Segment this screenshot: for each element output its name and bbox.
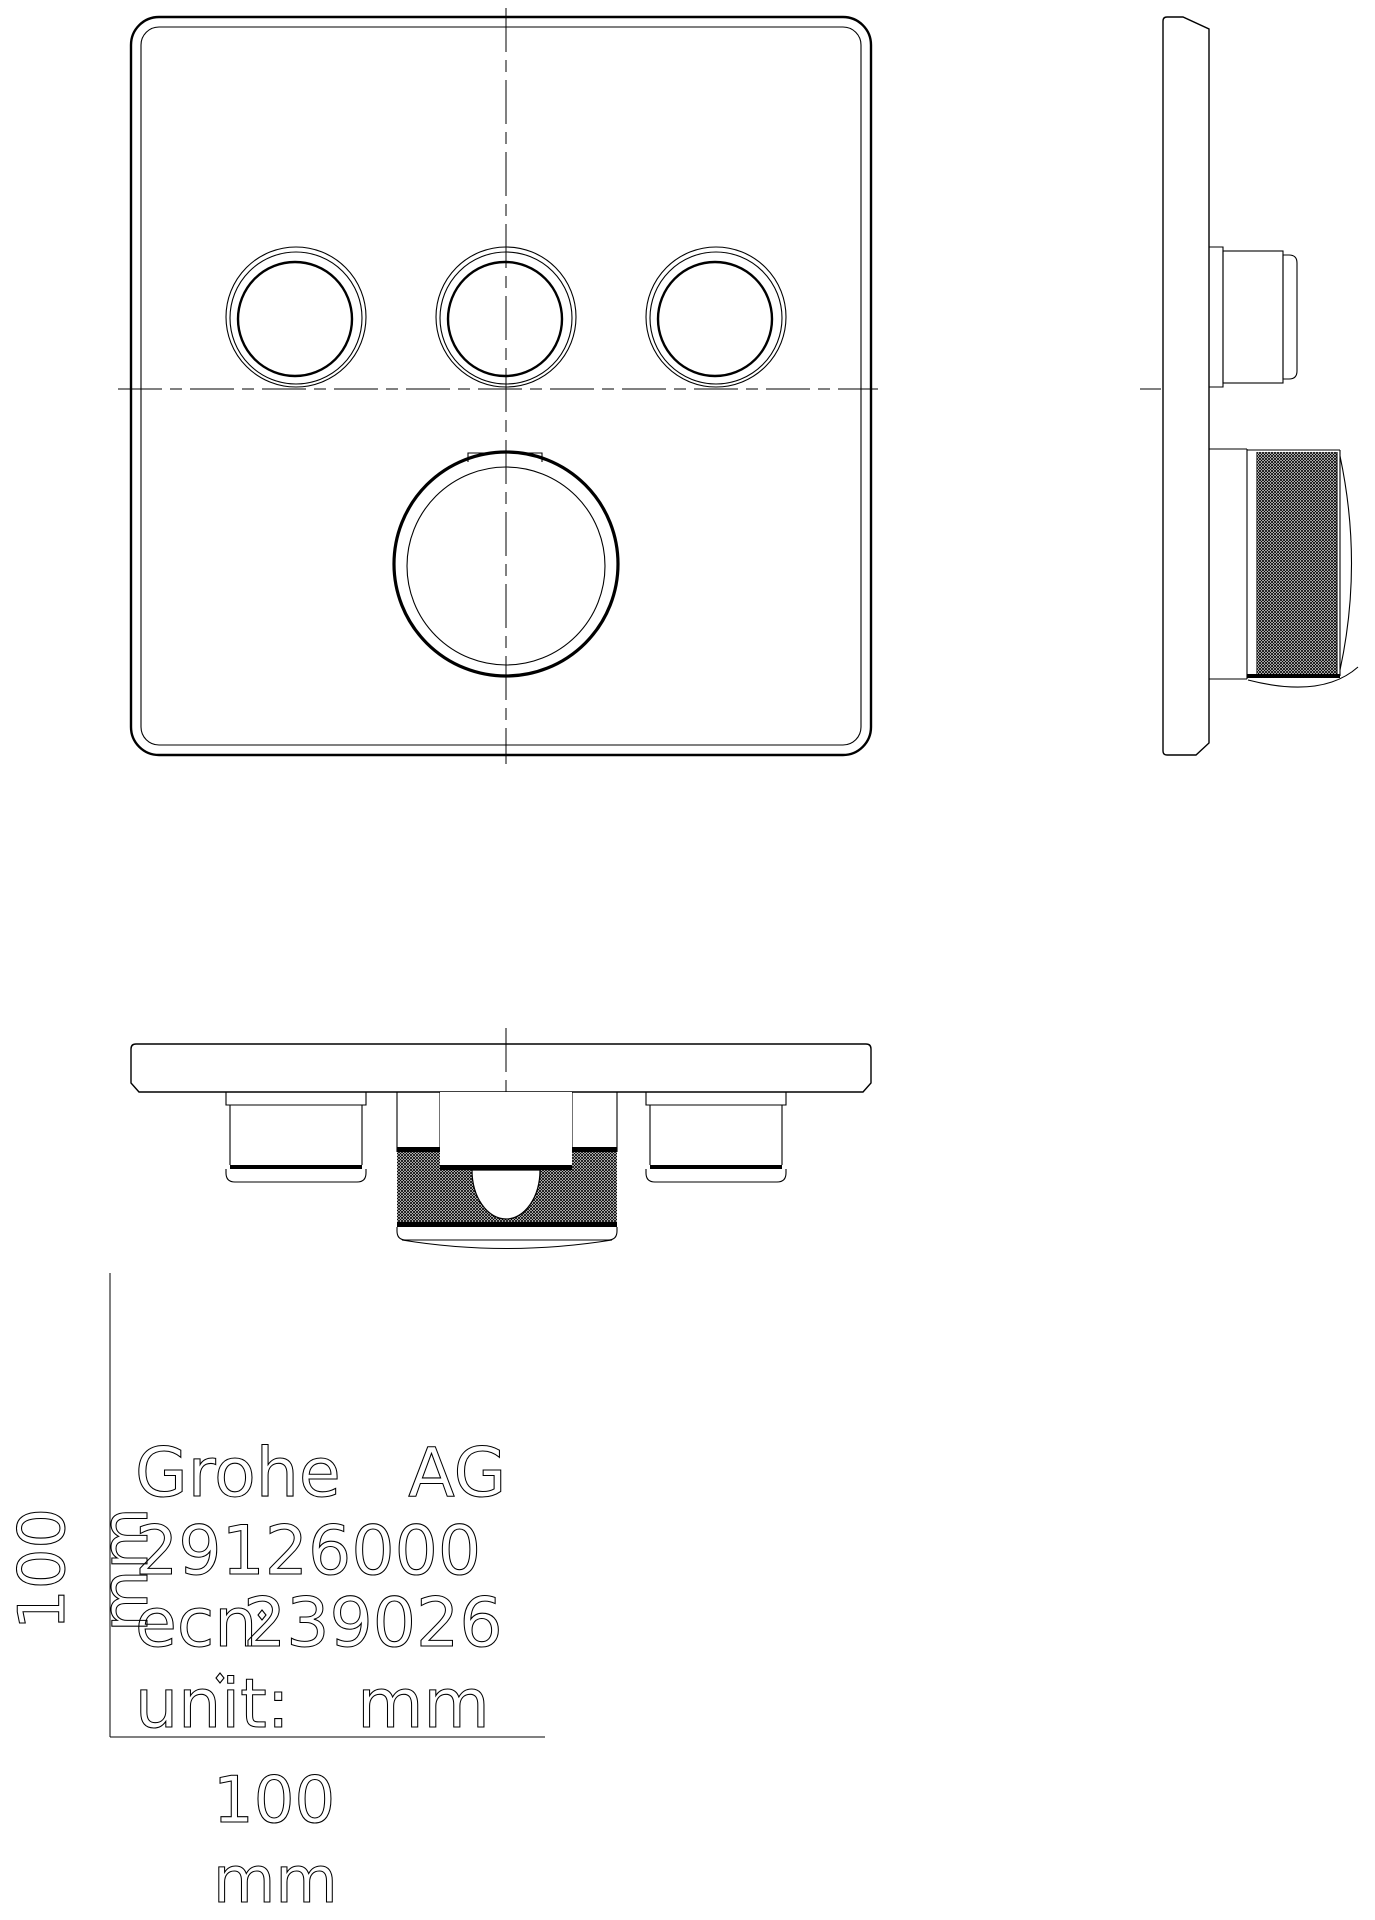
button-band — [226, 1092, 366, 1105]
width-dimension-unit: mm — [213, 1844, 338, 1918]
button-mid-ring — [650, 252, 782, 384]
bottom-plate — [131, 1044, 871, 1092]
knob-knurl-top-left-bold — [397, 1147, 440, 1152]
front-button-right — [646, 247, 786, 387]
button-bold-line — [230, 1165, 362, 1169]
technical-drawing-page: 100 mm 100 mm Grohe AG 29126000 ecn 2390… — [0, 0, 1375, 1920]
knob-face-bottom-arc — [402, 1240, 612, 1249]
side-view — [1140, 17, 1358, 755]
unit-label: unit: mm — [135, 1665, 490, 1744]
knob-knurl-bottom-bold — [397, 1222, 617, 1227]
knob-valve-sleeve — [440, 1092, 572, 1165]
button-face — [238, 262, 352, 376]
front-plate-inner-edge — [141, 27, 861, 745]
bottom-button-right — [646, 1092, 786, 1182]
front-button-left — [226, 247, 366, 387]
bottom-view — [131, 1028, 871, 1249]
height-dimension-value: 100 — [6, 1508, 80, 1630]
button-bold-line — [650, 1165, 782, 1169]
button-face — [658, 262, 772, 376]
company-name: Grohe AG — [135, 1434, 506, 1513]
bottom-button-left — [226, 1092, 366, 1182]
side-button-cap — [1283, 255, 1297, 379]
front-plate-outer-edge — [131, 17, 871, 755]
ecn-number: 239026 — [243, 1584, 503, 1663]
button-face — [448, 262, 562, 376]
drawing-root: 100 mm 100 mm Grohe AG 29126000 ecn 2390… — [6, 8, 1358, 1918]
side-button-body — [1223, 251, 1283, 383]
side-plate — [1163, 17, 1209, 755]
width-dimension-value: 100 — [213, 1764, 335, 1838]
button-cap — [226, 1169, 366, 1182]
button-outer-ring — [226, 247, 366, 387]
side-knob-face-arc — [1340, 456, 1352, 670]
side-knob-bottom-bold — [1247, 674, 1340, 678]
button-mid-ring — [230, 252, 362, 384]
title-block: Grohe AG 29126000 ecn 239026 unit: mm — [135, 1434, 506, 1744]
knob-valve-bold-line — [440, 1165, 572, 1170]
knob-cap — [397, 1227, 617, 1240]
side-knob-knurl-texture — [1257, 452, 1337, 674]
side-button-base — [1209, 247, 1223, 387]
button-cap — [646, 1169, 786, 1182]
side-knob — [1209, 449, 1358, 687]
technical-drawing-canvas: 100 mm 100 mm Grohe AG 29126000 ecn 2390… — [0, 0, 1375, 1920]
product-number: 29126000 — [135, 1512, 481, 1591]
side-button — [1209, 247, 1297, 387]
button-band — [646, 1092, 786, 1105]
knob-knurl-top-right-bold — [572, 1147, 617, 1152]
button-outer-ring — [646, 247, 786, 387]
front-view — [118, 8, 878, 764]
ecn-label: ecn — [135, 1584, 257, 1663]
bottom-knob — [397, 1092, 617, 1249]
